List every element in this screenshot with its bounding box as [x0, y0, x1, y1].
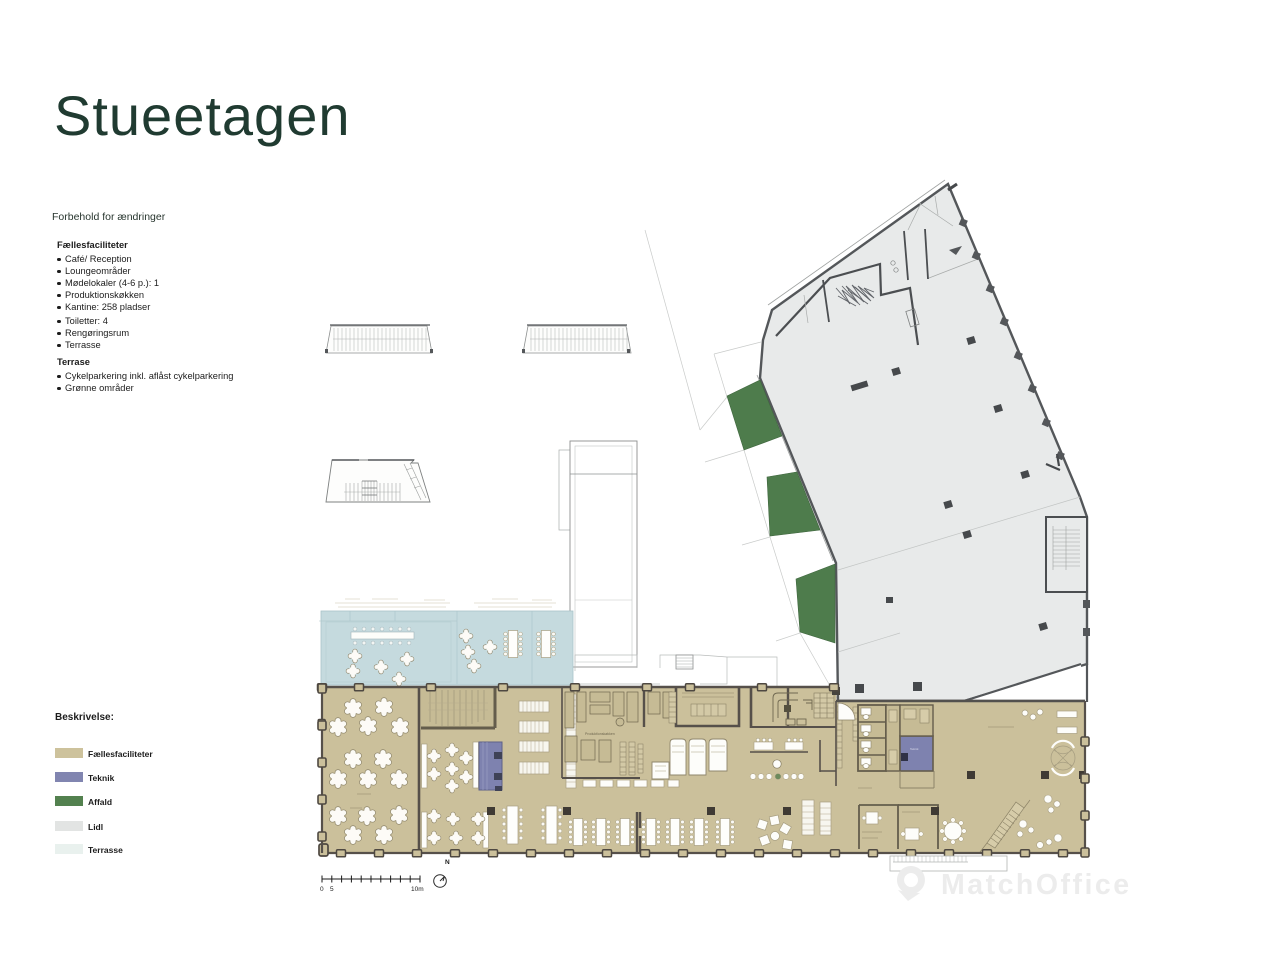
svg-text:10m: 10m	[411, 886, 424, 893]
svg-text:MatchOffice: MatchOffice	[941, 869, 1132, 901]
svg-text:5: 5	[330, 886, 334, 893]
svg-text:Teknik: Teknik	[910, 747, 919, 751]
svg-text:N: N	[445, 859, 450, 866]
svg-text:Produktionskøkken: Produktionskøkken	[585, 732, 615, 736]
svg-text:0: 0	[320, 886, 324, 893]
